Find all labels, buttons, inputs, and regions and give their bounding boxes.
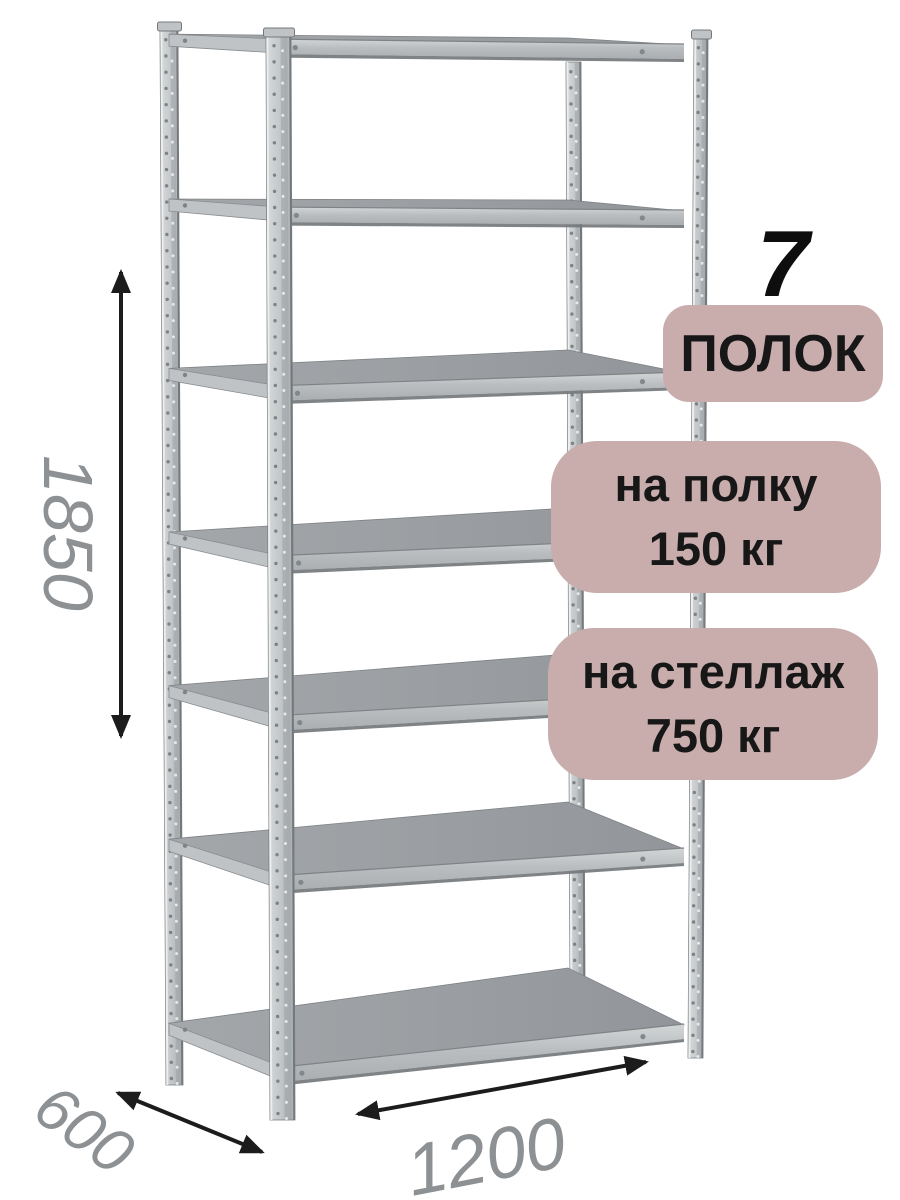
post-front-left-perforation [275,853,278,856]
post-front-left-perforation [285,1101,288,1104]
post-back-left-perforation [167,639,170,642]
post-back-right-perforation [575,108,578,111]
post-front-right-perforation [696,111,699,114]
post-front-left-perforation [284,907,287,910]
post-back-right-perforation [576,334,579,337]
post-back-right-perforation [575,188,578,191]
post-back-left-perforation [167,622,170,625]
post-front-left-perforation [285,1020,288,1023]
post-back-left-perforation [169,963,172,966]
post-back-left-perforation [175,936,178,939]
post-front-left-perforation [274,432,277,435]
post-front-left-perforation [274,578,277,581]
post-front-right-perforation [697,1023,700,1026]
post-back-right-perforation [570,183,573,186]
post-back-right-perforation [569,135,572,138]
post-back-left-perforation [174,806,177,809]
post-back-left-perforation [173,481,176,484]
post-back-right-perforation [570,167,573,170]
shelf-1-screw [183,39,187,43]
post-back-right-perforation [571,409,574,412]
post-front-left-perforation [276,950,279,953]
shelf-count-badge: ПОЛОК [663,305,883,402]
post-front-right-perforation [692,888,695,891]
post-back-left-perforation [174,741,177,744]
post-back-left-perforation [171,238,174,241]
shelf-5-screw [183,690,187,694]
post-front-left-perforation [284,858,287,861]
post-front-left-perforation [282,340,285,343]
post-front-right-perforation [698,845,701,848]
post-back-left-perforation [165,184,168,187]
post-back-left-perforation [166,314,169,317]
post-back-left-perforation [165,119,168,122]
post-front-left-perforation [273,125,276,128]
post-front-right-perforation [696,1055,699,1058]
post-back-left-perforation [175,887,178,890]
post-front-right-perforation [702,51,705,54]
post-front-left-perforation [274,400,277,403]
post-back-left-perforation [165,282,168,285]
post-front-right-perforation [697,1006,700,1009]
post-back-left-perforation [175,952,178,955]
post-front-left-perforation [283,632,286,635]
post-front-right-perforation [701,148,704,151]
post-front-left-perforation [283,680,286,683]
post-back-right-perforation [575,140,578,143]
post-front-left-perforation [273,335,276,338]
post-back-right-perforation [569,70,572,73]
shelf-6-screw [640,856,645,861]
post-back-left-perforation [164,103,167,106]
post-back-right-perforation [573,959,576,962]
post-front-left-perforation [274,416,277,419]
post-front-left-perforation [274,594,277,597]
post-front-right-perforation [697,926,700,929]
post-front-right-perforation [695,289,698,292]
post-back-left-perforation [172,384,175,387]
post-back-left-perforation [169,898,172,901]
per-rack-load-badge: на стеллаж 750 кг [548,628,878,780]
shelving-rack-illustration: 1850 600 1200 [0,0,900,1200]
post-back-left-perforation [173,563,176,566]
post-back-right-perforation [575,172,578,175]
post-front-left-perforation [283,696,286,699]
post-back-left-perforation [166,298,169,301]
post-back-left-perforation [173,595,176,598]
post-back-right-perforation [570,264,573,267]
post-front-right-perforation [695,273,698,276]
post-front-left-perforation [281,49,284,52]
post-back-left-perforation [165,249,168,252]
post-back-left-perforation [168,752,171,755]
post-front-left-perforation [281,130,284,133]
post-front-right-perforation [700,294,703,297]
post-front-left-perforation [275,804,278,807]
post-front-right-perforation [692,823,695,826]
post-back-left-perforation [175,855,178,858]
post-back-left-perforation [167,574,170,577]
post-front-right-perforation [696,176,699,179]
post-front-right-perforation [699,602,702,605]
post-back-left-perforation [166,444,169,447]
post-front-left-perforation [281,162,284,165]
post-back-right-perforation [578,932,581,935]
post-front-left-perforation [285,1117,288,1120]
shelf-4-screw [296,560,301,565]
post-front-right-perforation [692,872,695,875]
post-back-left-perforation [174,757,177,760]
post-back-left-perforation [169,996,172,999]
post-front-left-perforation [282,438,285,441]
post-front-left-perforation [274,610,277,613]
shelf-3-screw [183,373,187,377]
post-back-right-perforation [570,345,573,348]
post-back-left-perforation [168,801,171,804]
post-front-right-perforation [696,224,699,227]
post-back-right-perforation [573,910,576,913]
post-front-left-perforation [283,567,286,570]
post-front-left-perforation [283,713,286,716]
post-front-right-perforation [701,181,704,184]
post-back-left-perforation [175,1017,178,1020]
post-front-left-perforation [284,810,287,813]
post-back-left-perforation [174,660,177,663]
post-back-left-perforation [167,509,170,512]
post-front-left-perforation [282,211,285,214]
post-front-left-perforation [275,756,278,759]
post-back-left-perforation [165,217,168,220]
post-back-left-perforation [173,546,176,549]
post-front-left-perforation [282,292,285,295]
post-front-left-perforation [284,923,287,926]
post-front-right-perforation [702,84,705,87]
post-front-right-perforation [691,985,694,988]
post-front-left-perforation [276,918,279,921]
post-front-right-perforation [699,618,702,621]
post-front-left-perforation [281,82,284,85]
post-back-left-perforation [167,557,170,560]
post-back-left-perforation [172,319,175,322]
post-front-right-perforation [696,256,699,259]
post-back-left-perforation [173,498,176,501]
post-back-left-perforation [174,709,177,712]
post-back-left-perforation [172,303,175,306]
post-front-left-perforation [283,486,286,489]
post-back-left-perforation [173,611,176,614]
shelf-3-screw [295,391,300,396]
post-front-left-perforation [285,1052,288,1055]
post-back-left-perforation [169,1012,172,1015]
post-back-left-perforation [171,92,174,95]
post-front-right-perforation [697,942,700,945]
post-front-left-perforation [273,109,276,112]
post-front-left-perforation [281,146,284,149]
per-shelf-load-line1: на полку [614,453,817,517]
post-front-left-perforation [273,190,276,193]
post-front-right-perforation [697,958,700,961]
post-front-left-perforation [275,724,278,727]
depth-dimension-label: 600 [22,1072,146,1189]
post-front-right-perforation [697,861,700,864]
post-back-left-perforation [168,720,171,723]
post-back-right-perforation [569,118,572,121]
width-dimension-label: 1200 [400,1103,572,1200]
post-back-left-perforation [174,822,177,825]
post-front-right-perforation [701,229,704,232]
post-front-left-perforation [273,303,276,306]
post-back-left-perforation [173,579,176,582]
post-front-left-perforation [283,470,286,473]
post-front-left-perforation [284,988,287,991]
post-front-left-perforation [275,837,278,840]
post-front-right-perforation [701,213,704,216]
post-front-left-perforation [276,1031,279,1034]
post-front-right-perforation [698,828,701,831]
post-front-left-perforation [285,1085,288,1088]
post-front-left-perforation [275,659,278,662]
post-front-right-perforation [696,240,699,243]
shelf-6-screw [183,844,187,848]
post-back-right-perforation [575,237,578,240]
post-front-left-perforation [284,939,287,942]
post-front-right-perforation [696,159,699,162]
post-front-right-perforation [692,953,695,956]
post-back-left-perforation [174,676,177,679]
post-front-left-perforation [275,740,278,743]
post-back-right-perforation [573,878,576,881]
post-front-left-perforation [285,1004,288,1007]
post-back-left-perforation [169,915,172,918]
post-front-left-perforation [282,308,285,311]
post-back-right-perforation [570,329,573,332]
post-front-right-perforation [692,839,695,842]
per-rack-load-line1: на стеллаж [582,640,844,704]
shelf-3-screw [640,379,645,384]
post-front-left-perforation [282,260,285,263]
per-shelf-load-badge: на полку 150 кг [551,441,881,593]
post-front-right-perforation [692,969,695,972]
post-back-left-perforation [171,108,174,111]
post-back-left-perforation [168,785,171,788]
post-front-right-perforation [701,197,704,200]
post-front-right-perforation [693,791,696,794]
post-back-left-perforation [167,655,170,658]
post-back-right-perforation [571,603,574,606]
post-front-left-perforation [285,1036,288,1039]
post-back-right-perforation [578,899,581,902]
shelf-2 [169,199,684,228]
post-back-left-perforation [166,460,169,463]
post-front-left-perforation [284,729,287,732]
post-back-left-perforation [175,871,178,874]
post-front-left-perforation [283,583,286,586]
post-front-left-perforation [284,874,287,877]
shelf-7-screw [183,1028,187,1032]
post-front-left-perforation [273,271,276,274]
post-back-left [158,22,184,1085]
post-front-right-perforation [692,904,695,907]
post-front-right-perforation [697,1039,700,1042]
post-front-left-perforation [274,562,277,565]
post-back-right-perforation [570,232,573,235]
post-back-left-perforation [171,124,174,127]
post-front-left-perforation [274,497,277,500]
post-front-right-perforation [701,262,704,265]
post-front-right-perforation [695,435,698,438]
post-front-left-perforation [275,691,278,694]
post-front-left-perforation [273,93,276,96]
post-front-left-perforation [282,421,285,424]
post-back-left-perforation [167,493,170,496]
post-back-right-perforation [576,398,579,401]
post-back-right-perforation [571,425,574,428]
post-front-left-perforation [273,238,276,241]
post-front-right-perforation [701,278,704,281]
post-front-left-perforation [273,319,276,322]
post-back-right-perforation [573,894,576,897]
post-front-right-perforation [696,95,699,98]
post-back-left-perforation [169,866,172,869]
post-back-left-perforation [165,233,168,236]
post-back-right-perforation [575,91,578,94]
post-back-left-perforation [172,335,175,338]
post-back-left-perforation [166,395,169,398]
post-front-right-perforation [696,143,699,146]
post-back-left-perforation [172,449,175,452]
post-back-left-perforation [164,38,167,41]
post-front-left-perforation [284,826,287,829]
post-front-left-perforation [283,664,286,667]
post-back-right-perforation [578,915,581,918]
shelf-7-screw [299,1071,304,1076]
post-back-left-perforation [165,200,168,203]
post-front-left-perforation [282,276,285,279]
post-front-right-perforation [694,596,697,599]
post-back-right-perforation [572,619,575,622]
post-back-right-perforation [578,786,581,789]
post-front-left-perforation [273,351,276,354]
post-back-right-perforation [573,943,576,946]
post-back-left-perforation [175,985,178,988]
post-front-right-perforation [697,46,700,49]
post-front-left-perforation [275,707,278,710]
post-front-left-perforation [284,971,287,974]
post-back-left-perforation [166,428,169,431]
post-front-right-perforation [700,407,703,410]
post-front-left-perforation [275,643,278,646]
post-back-right-perforation [577,592,580,595]
post-front-left-perforation [272,60,275,63]
post-back-left-perforation [174,725,177,728]
post-back-right-perforation [577,625,580,628]
post-front-left-perforation [284,842,287,845]
post-back-left-perforation [169,931,172,934]
post-back-left-perforation [168,768,171,771]
post-back-right-perforation [569,151,572,154]
post-back-left-perforation [168,833,171,836]
post-back-left-perforation [168,817,171,820]
post-front-right-perforation [698,796,701,799]
post-back-left-perforation [176,1082,179,1085]
post-back-left-perforation [165,265,168,268]
post-back-left-perforation [165,152,168,155]
post-back-left-perforation [165,135,168,138]
post-back-left-perforation [167,525,170,528]
post-front-left-perforation [273,206,276,209]
post-front-left-perforation [284,761,287,764]
post-back-right-perforation [577,608,580,611]
post-front-left-perforation [273,222,276,225]
post-front-right-perforation [697,877,700,880]
post-front-left-perforation [282,227,285,230]
post-front-left-perforation [283,648,286,651]
post-front-left-perforation [273,173,276,176]
post-front-left-perforation [275,885,278,888]
post-back-right-perforation [578,802,581,805]
post-front-left-perforation [281,114,284,117]
post-front-left-perforation [273,254,276,257]
post-back-left-perforation [166,346,169,349]
post-back-left-perforation [173,514,176,517]
post-back-right-perforation [578,964,581,967]
post-front-right-perforation [696,192,699,195]
post-front-left-perforation [284,745,287,748]
post-back-left-perforation [170,1061,173,1064]
post-front-left-perforation [282,195,285,198]
post-back-right-perforation [570,248,573,251]
post-front-right-perforation [691,1034,694,1037]
post-front-right-cap [692,30,712,39]
post-front-left-perforation [284,955,287,958]
post-back-right-perforation [572,797,575,800]
post-front-left-perforation [282,179,285,182]
post-front-left-perforation [276,1079,279,1082]
post-front-left-perforation [284,891,287,894]
post-back-right-perforation [574,75,577,78]
post-front-left-perforation [284,777,287,780]
post-front-right-perforation [701,116,704,119]
post-back-right-perforation [575,269,578,272]
post-front-left-perforation [282,357,285,360]
post-back-right-perforation [569,86,572,89]
post-front-left-perforation [274,626,277,629]
post-front-left-perforation [272,76,275,79]
post-front-left-perforation [282,243,285,246]
post-back-left-perforation [172,287,175,290]
post-back-left-perforation [173,628,176,631]
post-front-left-perforation [276,1047,279,1050]
post-front-right-perforation [697,62,700,65]
post-back-left-perforation [166,476,169,479]
post-back-left-perforation [166,330,169,333]
post-back-right-perforation [573,926,576,929]
post-front-left-perforation [283,599,286,602]
post-back-left-perforation [164,54,167,57]
post-front-left-perforation [275,821,278,824]
post-back-right-perforation [569,102,572,105]
post-back-left-perforation [171,59,174,62]
post-front-left-perforation [274,481,277,484]
post-back-left-perforation [166,411,169,414]
post-front-left-perforation [282,405,285,408]
post-front-right-perforation [694,613,697,616]
post-back-left-perforation [172,433,175,436]
post-back-left-perforation [176,1050,179,1053]
post-back-left-perforation [174,790,177,793]
post-back-right-perforation [575,253,578,256]
post-front-left-perforation [275,675,278,678]
